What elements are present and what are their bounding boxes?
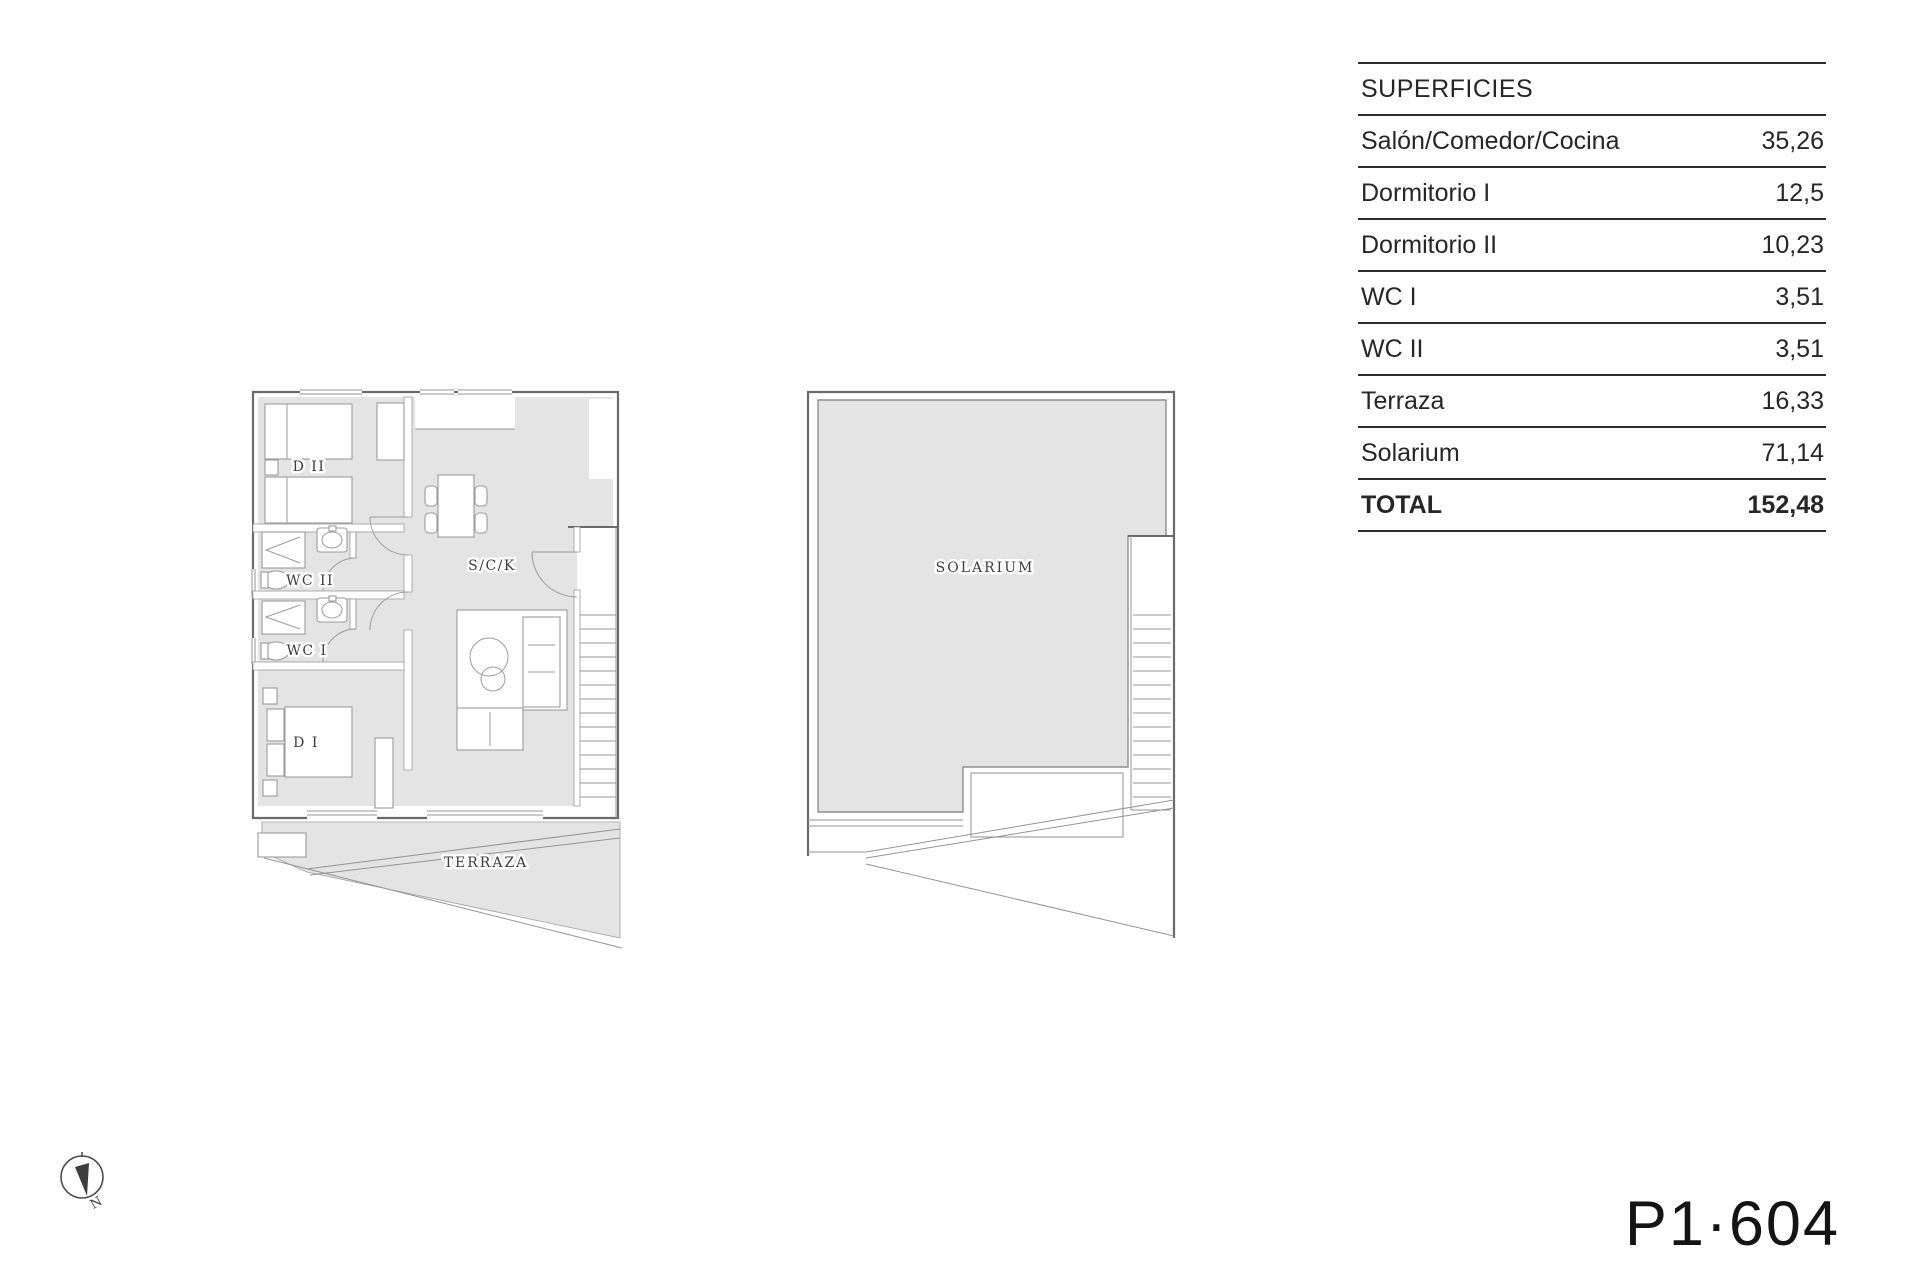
room-label-salon: S/C/K xyxy=(468,558,516,574)
row-value: 3,51 xyxy=(1775,283,1824,312)
row-label: Salón/Comedor/Cocina xyxy=(1361,127,1619,156)
wardrobe xyxy=(377,403,404,460)
row-value: 3,51 xyxy=(1775,335,1824,364)
solarium-stairs xyxy=(1131,536,1171,810)
table-title: SUPERFICIES xyxy=(1361,75,1533,104)
apartment-stairs xyxy=(580,527,616,818)
table-row: Terraza 16,33 xyxy=(1358,376,1826,428)
row-value: 71,14 xyxy=(1761,439,1824,468)
sheet-code: P1·604 xyxy=(1625,1188,1840,1260)
total-value: 152,48 xyxy=(1748,491,1824,520)
terraza-floor xyxy=(262,822,620,938)
row-label: Terraza xyxy=(1361,387,1444,416)
table-row: Salón/Comedor/Cocina 35,26 xyxy=(1358,116,1826,168)
table-row: Solarium 71,14 xyxy=(1358,428,1826,480)
row-label: Solarium xyxy=(1361,439,1460,468)
table-row: WC II 3,51 xyxy=(1358,324,1826,376)
row-value: 16,33 xyxy=(1761,387,1824,416)
row-label: WC I xyxy=(1361,283,1417,312)
apartment-plan: D II WC II WC I D I S/C/K TERRAZA xyxy=(248,388,622,948)
table-row: WC I 3,51 xyxy=(1358,272,1826,324)
compass-needle-icon xyxy=(75,1163,89,1196)
row-value: 12,5 xyxy=(1775,179,1824,208)
chair xyxy=(425,513,437,533)
row-label: WC II xyxy=(1361,335,1424,364)
room-label-wc1: WC I xyxy=(286,643,327,659)
table-header-row: SUPERFICIES xyxy=(1358,64,1826,116)
superficies-table: SUPERFICIES Salón/Comedor/Cocina 35,26 D… xyxy=(1358,62,1826,532)
terraza-planter xyxy=(258,833,306,857)
chair xyxy=(475,513,487,533)
room-label-terraza: TERRAZA xyxy=(444,855,529,871)
row-value: 10,23 xyxy=(1761,231,1824,260)
solarium-plan: SOLARIUM xyxy=(808,392,1174,938)
room-label-d2: D II xyxy=(293,459,326,475)
total-label: TOTAL xyxy=(1361,491,1442,520)
solarium-floor xyxy=(818,400,1166,812)
kitchen-cabinet xyxy=(523,617,560,707)
plan-sheet: { "sheet": { "code": "P1·604" }, "table"… xyxy=(0,0,1920,1280)
table-total-row: TOTAL 152,48 xyxy=(1358,480,1826,532)
kitchen-top-recess xyxy=(415,396,515,429)
room-label-solarium: SOLARIUM xyxy=(936,560,1035,576)
table-row: Dormitorio I 12,5 xyxy=(1358,168,1826,220)
room-label-d1: D I xyxy=(293,735,319,751)
north-compass: N xyxy=(61,1152,105,1213)
stair-notch xyxy=(589,399,613,479)
row-label: Dormitorio II xyxy=(1361,231,1497,260)
wardrobe xyxy=(375,738,393,808)
dining-table xyxy=(438,475,474,537)
room-label-wc2: WC II xyxy=(286,573,334,589)
chair xyxy=(475,486,487,506)
table-row: Dormitorio II 10,23 xyxy=(1358,220,1826,272)
row-value: 35,26 xyxy=(1761,127,1824,156)
chair xyxy=(425,486,437,506)
row-label: Dormitorio I xyxy=(1361,179,1490,208)
